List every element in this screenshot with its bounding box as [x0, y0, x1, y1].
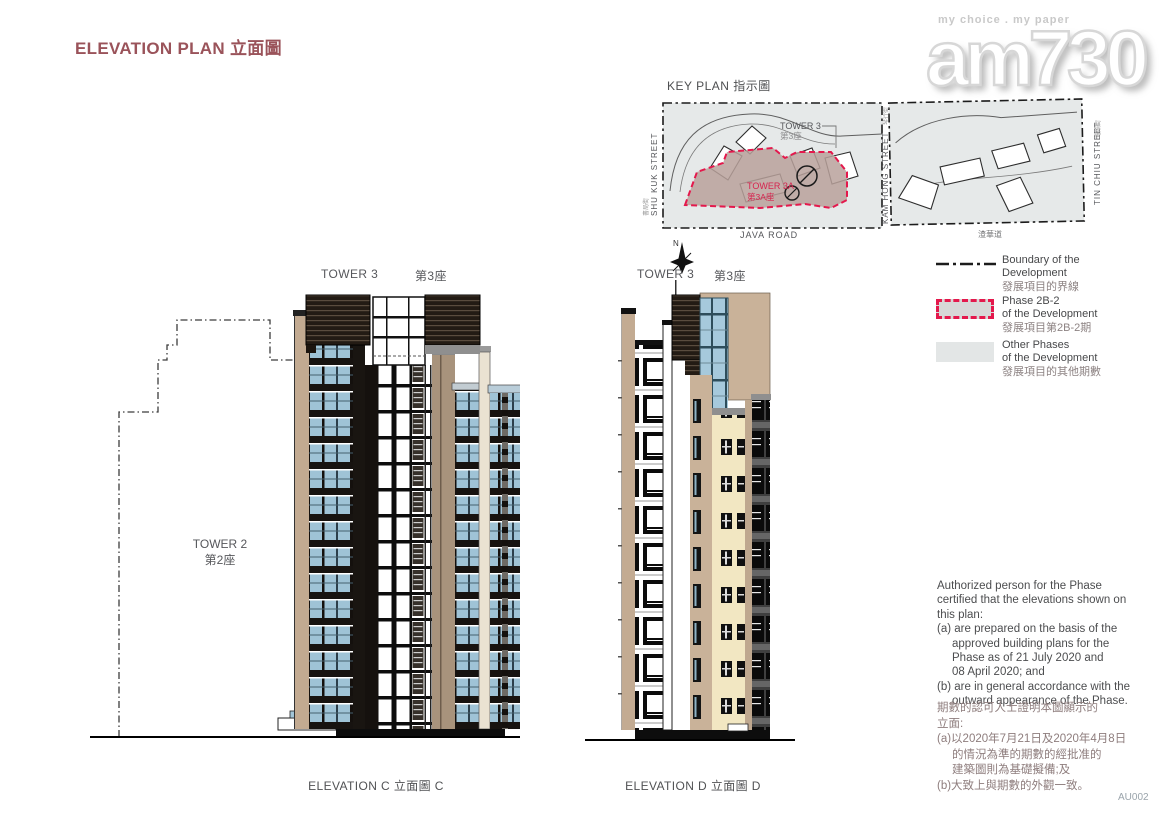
- page-title: ELEVATION PLAN 立面圖: [75, 34, 282, 59]
- street-label-java-road-zh: 渣華道: [978, 229, 1002, 239]
- note-line: 08 April 2020; and: [937, 665, 1139, 679]
- elevation-c-drawing: [88, 280, 520, 750]
- am730-watermark: my choice . my paper am730: [926, 14, 1176, 90]
- watermark-tagline: my choice . my paper: [926, 14, 1176, 26]
- note-line: (a) are prepared on the basis of the: [937, 622, 1139, 636]
- floor-ticks: [618, 360, 622, 695]
- note-line: approved building plans for the: [937, 637, 1139, 651]
- note-line: 的情況為準的期數的經批准的: [937, 748, 1139, 764]
- watermark-logo: am730: [926, 26, 1176, 90]
- street-label-shu-kuk: SHU KUK STREET: [650, 133, 659, 216]
- legend-text: Boundary of the: [1002, 254, 1152, 267]
- keyplan-right-block: [889, 99, 1085, 225]
- elevation-c-tower3-label: TOWER 3: [321, 267, 378, 281]
- street-label-kam-hong-zh: 琴行街: [882, 107, 890, 125]
- legend-other-phases-symbol: [936, 342, 994, 362]
- tower2-outline: [119, 320, 293, 737]
- street-label-java-road: JAVA ROAD: [740, 230, 798, 240]
- legend-text: Development: [1002, 267, 1152, 280]
- note-line: certified that the elevations shown on: [937, 593, 1139, 607]
- north-label: N: [673, 239, 679, 248]
- keyplan-title: KEY PLAN 指示圖: [667, 77, 771, 94]
- legend-text-zh: 發展項目的其他期數: [1002, 366, 1152, 379]
- legend-text: Other Phases: [1002, 339, 1152, 352]
- note-line: (a)以2020年7月21日及2020年4月8日: [937, 732, 1139, 748]
- legend-text: Phase 2B-2: [1002, 295, 1152, 308]
- elevation-d-drawing: [585, 280, 795, 750]
- authorized-person-notes-zh: 期數的認可人士證明本圖顯示的 立面: (a)以2020年7月21日及2020年4…: [937, 701, 1139, 795]
- street-label-kam-hong: KAM HONG STREET: [881, 132, 890, 224]
- legend-text-zh: 發展項目的界線: [1002, 281, 1152, 294]
- legend-phase2b2-symbol: [936, 299, 994, 319]
- keyplan-tower3a-label-zh: 第3A座: [747, 192, 775, 202]
- note-line: this plan:: [937, 608, 1139, 622]
- legend-text: of the Development: [1002, 352, 1152, 365]
- note-line: 期數的認可人士證明本圖顯示的: [937, 701, 1139, 717]
- legend-item-phase2b2: Phase 2B-2 of the Development 發展項目第2B-2期: [1002, 295, 1152, 335]
- keyplan-tower3a-label: TOWER 3A: [747, 181, 794, 191]
- legend-text-zh: 發展項目第2B-2期: [1002, 322, 1152, 335]
- legend-text: of the Development: [1002, 308, 1152, 321]
- legend-item-other-phases: Other Phases of the Development 發展項目的其他期…: [1002, 339, 1152, 379]
- keyplan-tower3-label-zh: 第3座: [780, 131, 802, 141]
- legend-item-boundary: Boundary of the Development 發展項目的界線: [1002, 254, 1152, 294]
- elevation-d-tower3-label: TOWER 3: [637, 267, 694, 281]
- authorized-person-notes-en: Authorized person for the Phase certifie…: [937, 579, 1139, 709]
- street-label-tin-chiu-zh: 電照街: [1094, 120, 1102, 138]
- elevation-d-caption: ELEVATION D 立面圖 D: [613, 777, 773, 794]
- note-line: Phase as of 21 July 2020 and: [937, 651, 1139, 665]
- sheet-code: AU002: [1118, 792, 1149, 803]
- elevation-c-caption: ELEVATION C 立面圖 C: [296, 777, 456, 794]
- street-label-shu-kuk-zh: 書局街: [642, 198, 650, 216]
- elevation-plan-sheet: ELEVATION PLAN 立面圖 my choice . my paper …: [0, 0, 1176, 830]
- legend-boundary-symbol: [936, 258, 996, 270]
- note-line: 建築圖則為基礎擬備;及: [937, 763, 1139, 779]
- note-line: (b) are in general accordance with the: [937, 680, 1139, 694]
- note-line: 立面:: [937, 717, 1139, 733]
- note-line: (b)大致上與期數的外觀一致。: [937, 779, 1139, 795]
- keyplan-tower3-label: TOWER 3: [780, 121, 821, 131]
- note-line: Authorized person for the Phase: [937, 579, 1139, 593]
